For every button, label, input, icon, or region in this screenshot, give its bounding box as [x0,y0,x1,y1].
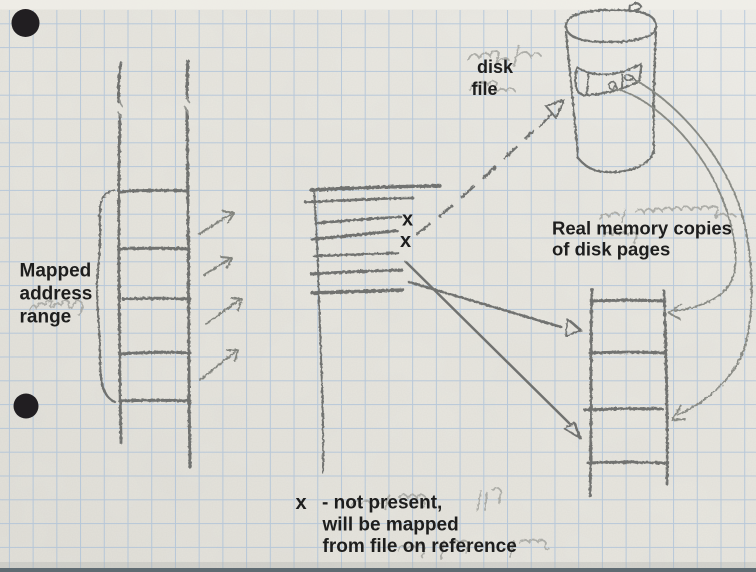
svg-text:x: x [402,209,413,231]
svg-text:x: x [400,230,411,252]
svg-text:Real memory copies: Real memory copies [552,218,732,239]
svg-text:range: range [20,307,72,328]
svg-text:disk: disk [477,57,514,77]
svg-text:- not present,: - not present, [322,493,442,514]
svg-text:Mapped: Mapped [20,261,92,282]
svg-text:x: x [296,492,307,514]
svg-text:file: file [472,79,498,99]
svg-text:from file on reference: from file on reference [323,536,517,557]
svg-text:of disk pages: of disk pages [552,239,670,260]
svg-text:will be mapped: will be mapped [322,515,459,536]
svg-text:address: address [20,284,93,305]
